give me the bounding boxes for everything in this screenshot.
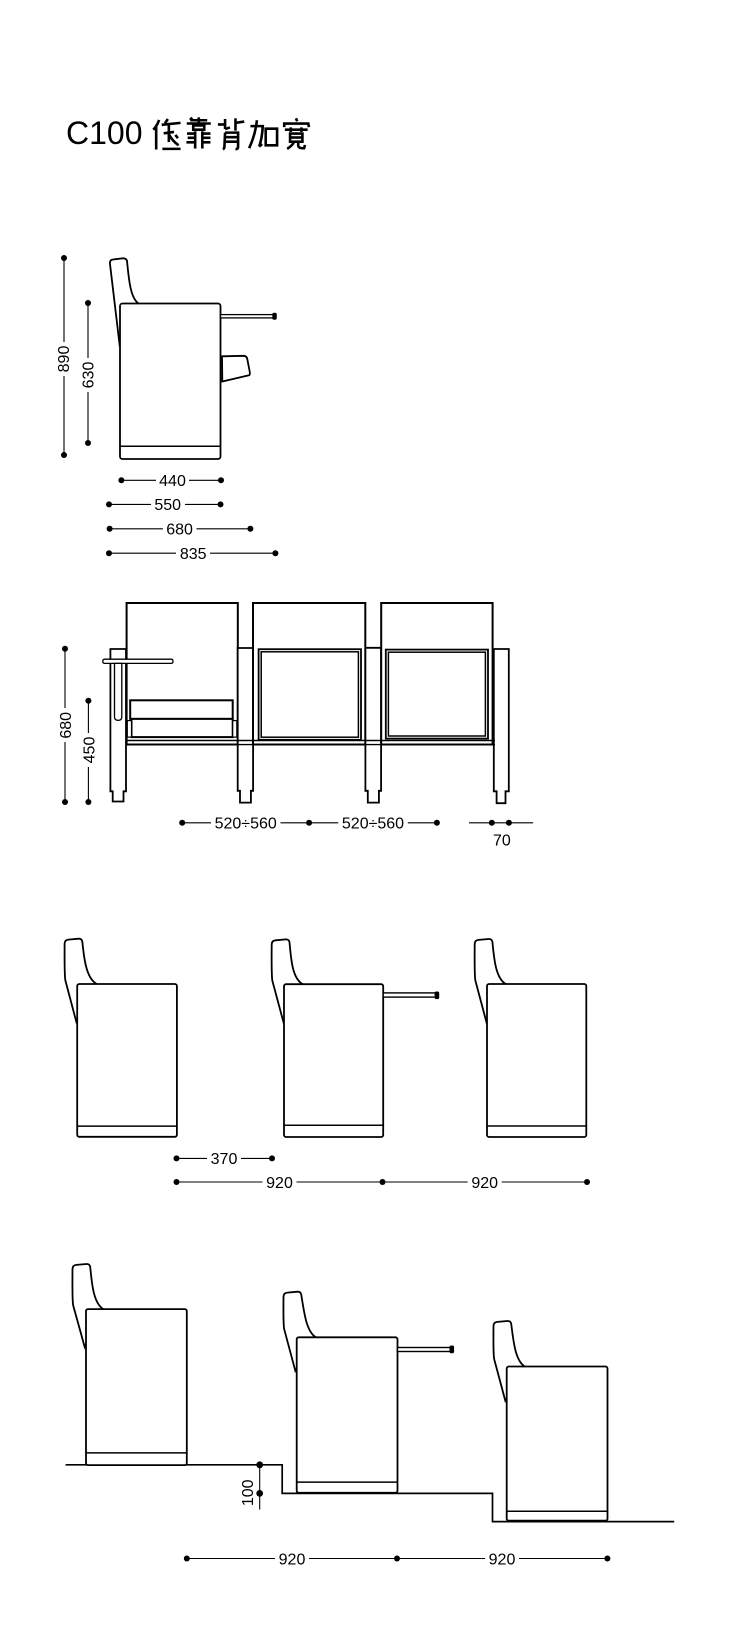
svg-text:680: 680 xyxy=(58,712,75,739)
svg-text:C100: C100 xyxy=(66,115,143,151)
svg-text:680: 680 xyxy=(166,522,193,539)
svg-text:835: 835 xyxy=(180,546,207,563)
svg-text:450: 450 xyxy=(82,737,99,764)
svg-text:440: 440 xyxy=(159,473,186,490)
svg-text:70: 70 xyxy=(493,833,511,850)
svg-text:920: 920 xyxy=(489,1551,516,1568)
svg-text:890: 890 xyxy=(56,346,73,373)
svg-text:520÷560: 520÷560 xyxy=(215,816,277,833)
svg-text:100: 100 xyxy=(240,1479,257,1506)
svg-text:920: 920 xyxy=(279,1551,306,1568)
svg-text:550: 550 xyxy=(154,497,181,514)
svg-text:370: 370 xyxy=(211,1151,238,1168)
svg-text:920: 920 xyxy=(471,1175,498,1192)
svg-text:630: 630 xyxy=(80,362,97,389)
svg-text:920: 920 xyxy=(266,1175,293,1192)
svg-text:520÷560: 520÷560 xyxy=(342,816,404,833)
